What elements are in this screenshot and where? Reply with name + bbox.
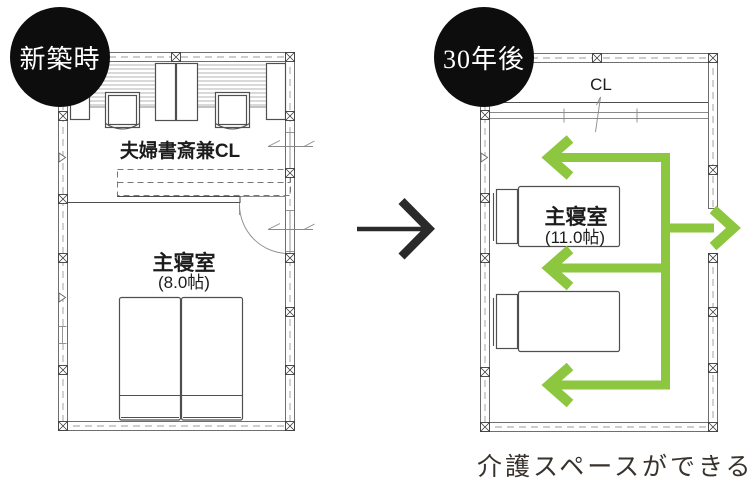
left-floorplan (59, 53, 315, 431)
bedroom-size-before: (8.0帖) (158, 268, 210, 293)
cabinet-middle (156, 64, 198, 121)
door-swing (240, 203, 289, 254)
arrowhead-right-icon (713, 210, 734, 247)
partition-wall (68, 197, 287, 204)
closet-label: CL (590, 75, 612, 95)
dashed-closet-outline (118, 170, 291, 196)
care-space-arrows (549, 139, 734, 404)
closet (490, 97, 708, 132)
double-bed-right (182, 298, 243, 421)
transform-arrow-icon (357, 201, 429, 257)
bedroom-size-after: (11.0帖) (545, 223, 605, 248)
desk-chair-left (106, 93, 140, 130)
study-room-label: 夫婦書斎兼CL (120, 136, 240, 163)
single-bed-lower (494, 292, 620, 352)
floorplan-comparison-diagram: 新築時 30年後 夫婦書斎兼CL 主寝室 (8.0帖) CL 主寝室 (11.0… (0, 0, 750, 494)
floorplan-drawing (0, 0, 750, 494)
care-space-caption: 介護スペースができる (477, 447, 750, 483)
cabinet-right (267, 64, 286, 120)
badge-new-construction: 新築時 (10, 7, 110, 107)
badge-30-years-later-label: 30年後 (443, 39, 525, 76)
right-floorplan (481, 54, 734, 432)
double-bed-left (120, 298, 181, 421)
badge-30-years-later: 30年後 (434, 7, 534, 107)
desk-chair-right (216, 93, 250, 130)
badge-new-construction-label: 新築時 (19, 39, 100, 76)
